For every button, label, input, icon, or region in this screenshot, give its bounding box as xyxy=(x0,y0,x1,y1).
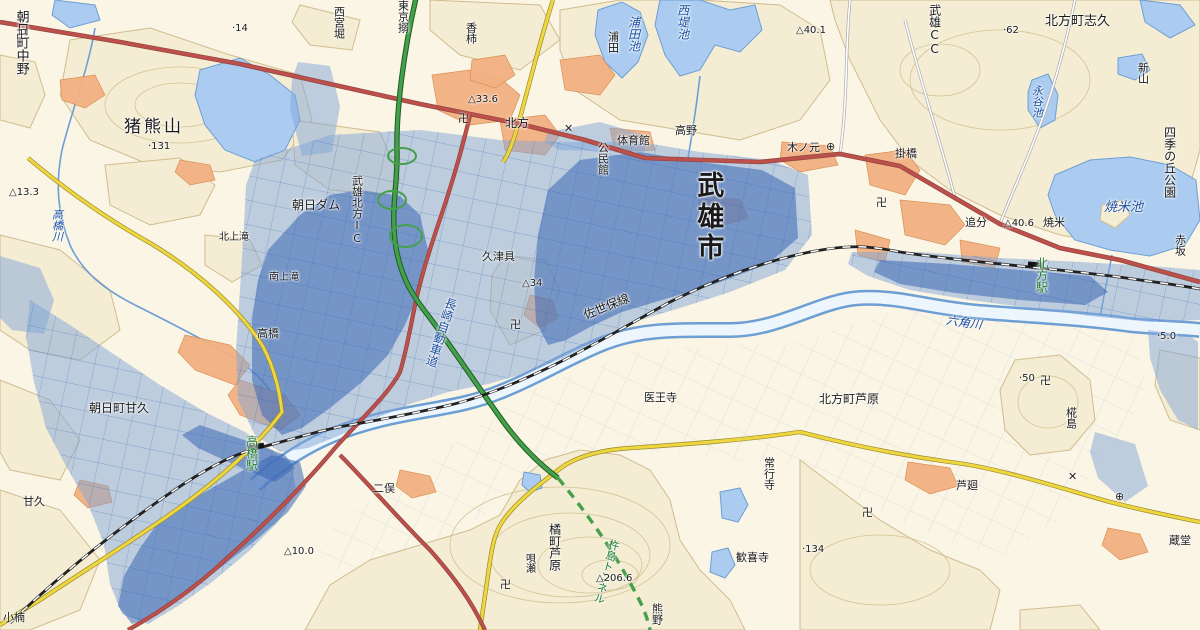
map-label: 四季の丘公園 xyxy=(1163,126,1176,198)
police-box-icon: ✕ xyxy=(1068,470,1077,483)
map-label: 武雄CC xyxy=(928,4,941,56)
map-label: 医王寺 xyxy=(644,392,677,404)
map-label: 永谷池 xyxy=(1031,85,1043,118)
map-label: 甘久 xyxy=(23,496,45,508)
map-label: 高橋川 xyxy=(51,209,63,242)
map-label: 木ノ元 xyxy=(787,142,820,154)
map-label: 久津具 xyxy=(482,251,515,263)
map-label: 朝日町甘久 xyxy=(89,402,149,415)
map-label: 橘町芦原 xyxy=(548,523,561,571)
map-label: 武雄北方IC xyxy=(351,175,363,245)
map-label: 猪熊山 xyxy=(124,119,184,137)
map-label: 朝日町中野 xyxy=(14,10,28,75)
map-label: 唄瀬 xyxy=(523,553,534,573)
map-label: 高野 xyxy=(675,125,697,137)
map-label: 芦廻 xyxy=(956,480,978,492)
map-label: 南上滝 xyxy=(269,273,299,284)
map-label: 熊野 xyxy=(651,603,663,625)
map-label: 北上滝 xyxy=(219,233,249,244)
map-label: ·5.0 xyxy=(1157,332,1176,343)
map-label: ·134 xyxy=(802,545,824,556)
temple-icon: 卍 xyxy=(16,26,27,42)
temple-icon: 卍 xyxy=(1040,372,1051,388)
police-box-icon: ✕ xyxy=(564,122,573,135)
town-office-icon: ⊕ xyxy=(1115,490,1124,503)
map-label: 公民館 xyxy=(597,142,609,175)
map-label: △10.0 xyxy=(284,547,314,558)
map-label: 北方 xyxy=(505,117,529,130)
map-label: 掛橋 xyxy=(895,148,917,160)
map-label: 北方町芦原 xyxy=(819,393,879,406)
map-label: 焼米 xyxy=(1043,217,1065,229)
map-label: △33.6 xyxy=(468,95,498,106)
map-label: 蔵堂 xyxy=(1169,535,1191,547)
temple-icon: 卍 xyxy=(500,576,511,592)
temple-icon: 卍 xyxy=(876,194,887,210)
town-office-icon: ⊕ xyxy=(826,140,835,153)
map-label: 二俣 xyxy=(373,483,395,495)
map-label: 浦田池 xyxy=(627,16,640,52)
map-label: 高橋駅 xyxy=(245,435,258,471)
map-label: △34 xyxy=(522,279,542,290)
map-label: 武雄市 xyxy=(693,171,721,264)
map-label: △40.6 xyxy=(1004,219,1034,230)
map-label: 小楠 xyxy=(3,612,25,624)
map-label: 追分 xyxy=(965,217,987,229)
map-label: ·131 xyxy=(148,142,170,153)
map-label: 東京搦 xyxy=(397,0,409,33)
map-label: ·50 xyxy=(1019,374,1035,385)
map-label: ·14 xyxy=(232,24,248,35)
map-label: △40.1 xyxy=(796,26,826,37)
temple-icon: 卍 xyxy=(862,504,873,520)
map-label: 椛島 xyxy=(1065,407,1077,429)
map-label: 西宮堀 xyxy=(333,6,345,39)
map-label: ·62 xyxy=(1003,26,1019,37)
map-label: 北方町志久 xyxy=(1045,15,1110,29)
map-label: 歓喜寺 xyxy=(736,552,769,564)
map-label: 常行寺 xyxy=(763,457,775,490)
map-label: 赤坂 xyxy=(1174,234,1186,256)
map-label: 朝日ダム xyxy=(292,199,340,212)
map-label: △13.3 xyxy=(9,188,39,199)
temple-icon: 卍 xyxy=(510,316,521,332)
temple-icon: 卍 xyxy=(458,110,469,126)
map-label: 焼米池 xyxy=(1104,201,1143,215)
map-label: 西堤池 xyxy=(676,4,689,40)
map-label: 体育館 xyxy=(617,135,650,147)
map-label: 香柿 xyxy=(465,22,477,44)
map-label: 北方駅 xyxy=(1035,257,1048,293)
map-label: 浦田 xyxy=(607,31,619,53)
map-label: 新山 xyxy=(1137,62,1149,84)
map-label: 高橋 xyxy=(257,328,279,340)
map-canvas: 朝日町中野猪熊山·131·14西宮堀東京搦香柿浦田浦田池西堤池武雄CC△40.1… xyxy=(0,0,1200,630)
map-label: △206.6 xyxy=(596,574,632,585)
